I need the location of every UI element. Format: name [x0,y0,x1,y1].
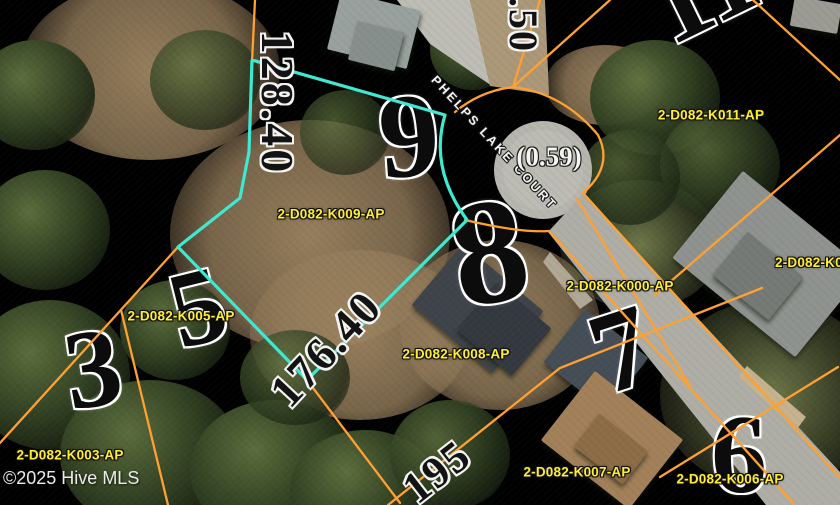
parcel-id-right-edge: 2-D082-K0 [775,256,840,270]
parcel-id-k011: 2-D082-K011-AP [658,108,764,122]
parcel-line [753,0,840,80]
parcel-id-k009: 2-D082-K009-AP [277,207,384,221]
parcel-id-k007: 2-D082-K007-AP [523,465,630,479]
watermark: ©2025 Hive MLS [3,469,139,487]
parcel-lines-layer [0,0,840,505]
parcel-line [655,135,840,295]
road-edge-ne [583,193,840,478]
dimension-label-west: 128.40 [254,31,300,176]
parcel-id-k003: 2-D082-K003-AP [16,448,123,462]
road-edge-sw [465,220,795,505]
parcel-map: 9 8 11 5 3 7 6 128.40 176.40 195 5.50 2-… [0,0,840,505]
parcel-line [0,247,178,443]
dimension-label-road-frontage: 5.50 [503,0,543,53]
parcel-id-k000: 2-D082-K000-AP [566,279,673,293]
parcel-line [307,380,400,503]
parcel-id-k006: 2-D082-K006-AP [676,472,783,486]
lot-area-label: (0.59) [516,144,581,171]
parcel-id-k005: 2-D082-K005-AP [127,309,234,323]
parcel-id-k008: 2-D082-K008-AP [402,347,509,361]
